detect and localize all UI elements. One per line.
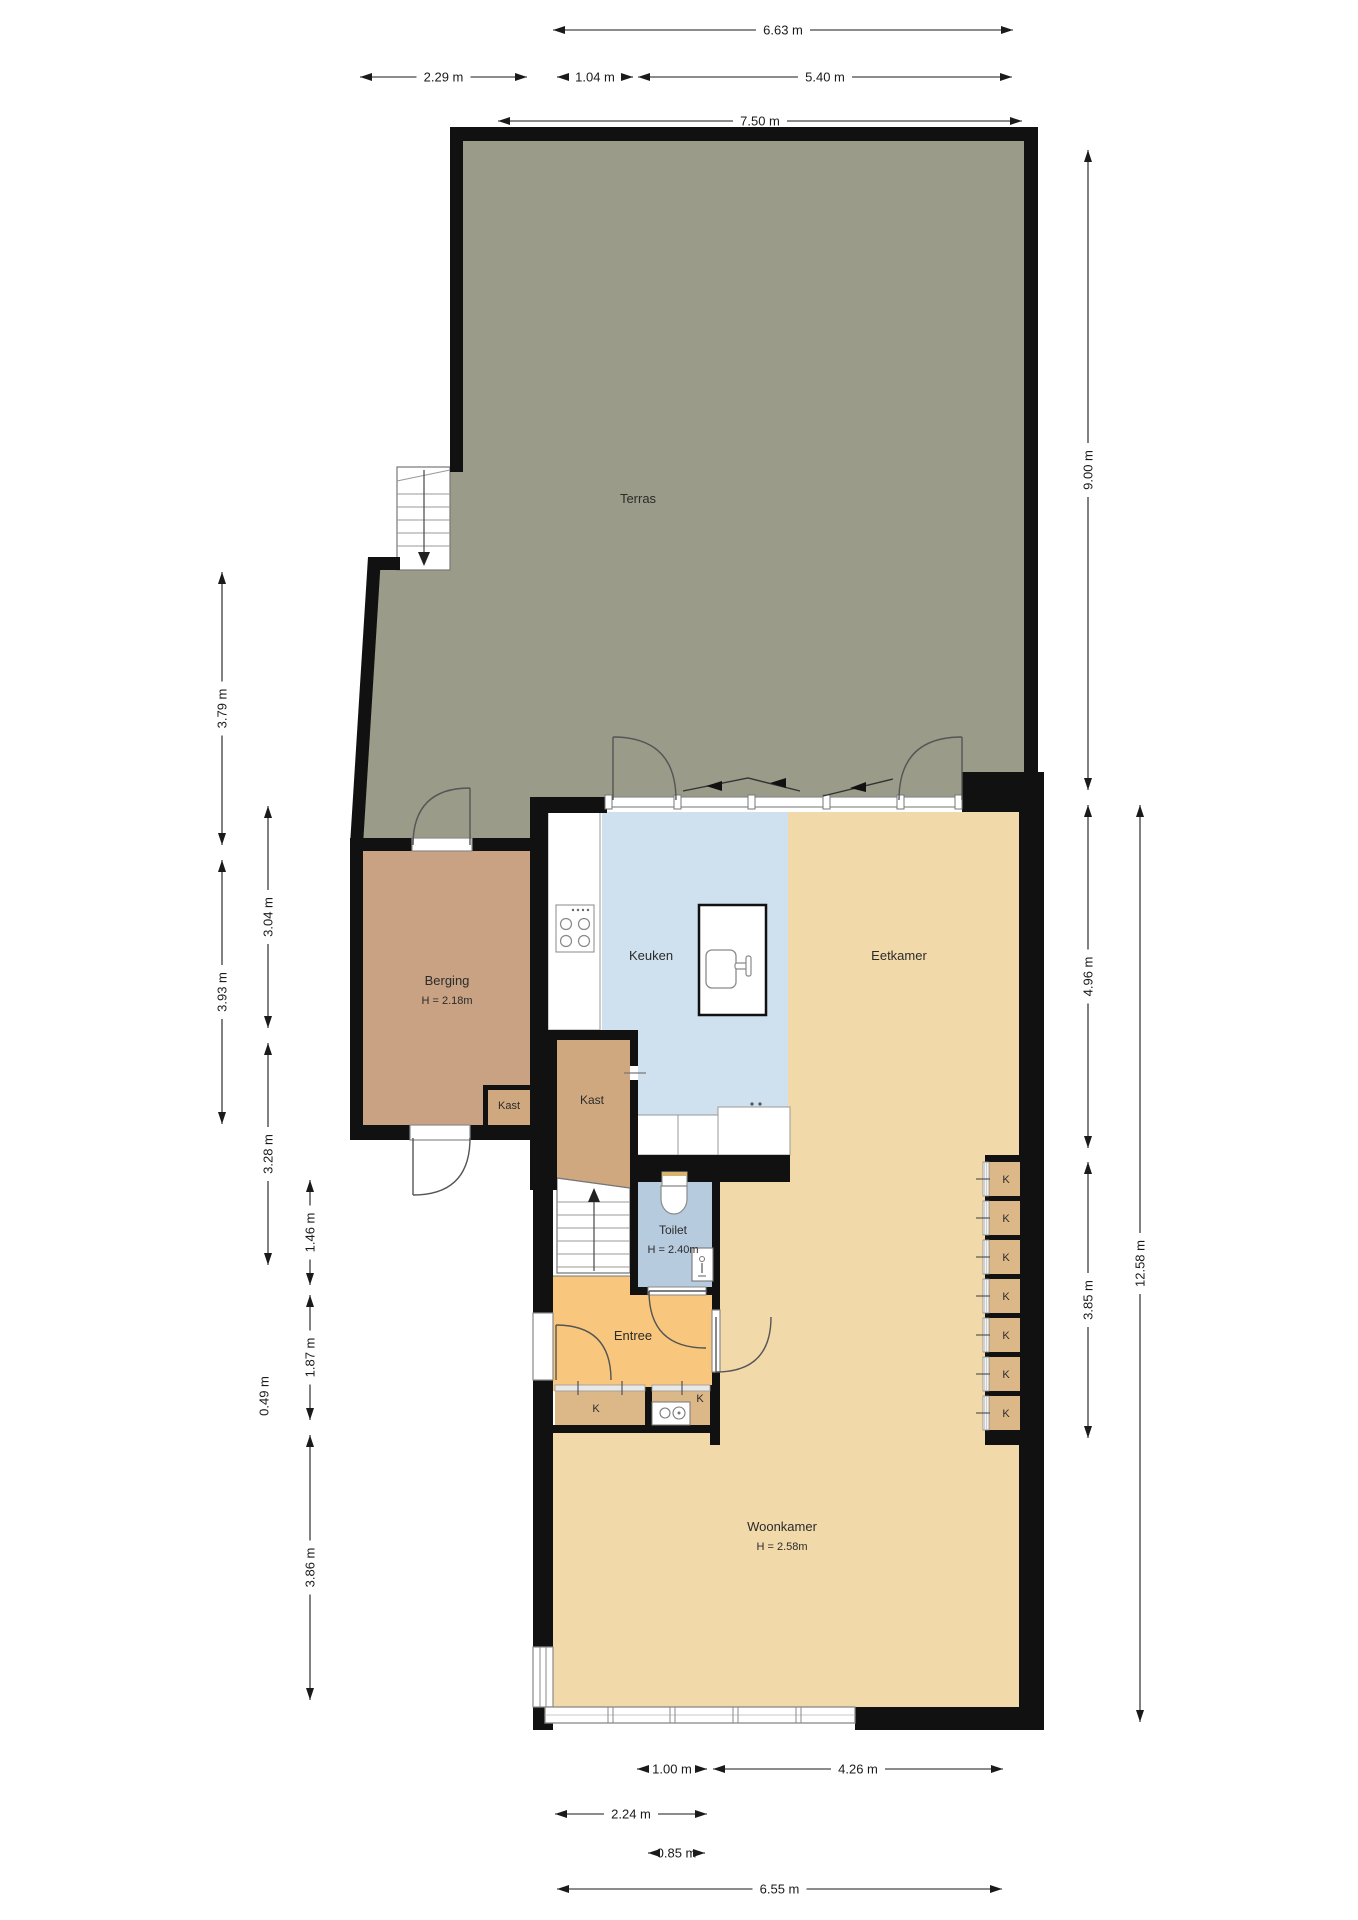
wall-berging-left — [350, 838, 363, 1140]
dimension-label: 1.00 m — [652, 1762, 692, 1777]
wall-kast-small-left — [483, 1085, 488, 1125]
room-sublabel-toilet: H = 2.40m — [647, 1244, 698, 1256]
dimension-arrow — [1084, 1136, 1092, 1148]
berging-top-door-frame — [412, 838, 472, 851]
floor-plan-drawing: KKKKKKK TerrasBergingH = 2.18mKastKastKe… — [0, 0, 1358, 1920]
room-kast-big — [557, 1040, 630, 1188]
room-sublabel-berging: H = 2.18m — [421, 995, 472, 1007]
room-label-kast-small: Kast — [498, 1100, 520, 1112]
dimension-label: 3.93 m — [215, 972, 230, 1012]
k-closet-label: K — [1002, 1213, 1010, 1225]
dimension-arrow — [557, 73, 569, 81]
dimension-arrow — [990, 1885, 1002, 1893]
wall-toilet-bottom-b — [706, 1287, 712, 1295]
room-label-keuken: Keuken — [629, 948, 673, 963]
dimension-arrow — [218, 860, 226, 872]
dimension-arrow — [557, 1885, 569, 1893]
wall-left-lower — [533, 1140, 553, 1730]
room-label-k-entree-left: K — [592, 1403, 600, 1415]
kitchen-island — [699, 905, 766, 1015]
dimension-arrow — [498, 117, 510, 125]
room-berging — [363, 851, 530, 1125]
dimension-arrow — [306, 1273, 314, 1285]
stairs-interior — [557, 1178, 630, 1273]
dimension-label: 3.86 m — [303, 1548, 318, 1588]
wall-top — [450, 127, 1038, 141]
dimension-arrow — [991, 1765, 1003, 1773]
room-label-eetkamer: Eetkamer — [871, 948, 927, 963]
dimension-label: 1.04 m — [575, 70, 615, 85]
dimension-arrow — [264, 1253, 272, 1265]
wall-terras-boundary-right — [962, 772, 1019, 812]
dimension-arrow — [1001, 26, 1013, 34]
floorplan-page: KKKKKKK TerrasBergingH = 2.18mKastKastKe… — [0, 0, 1358, 1920]
dimension-label: 3.28 m — [261, 1134, 276, 1174]
dimension-label: 6.63 m — [763, 23, 803, 38]
dimension-arrow — [1084, 150, 1092, 162]
room-label-kast-big: Kast — [580, 1093, 605, 1107]
dimension-arrow — [1000, 73, 1012, 81]
dimension-label: 0.49 m — [257, 1376, 272, 1416]
k-closet-label: K — [1002, 1408, 1010, 1420]
dimension-label: 9.00 m — [1081, 450, 1096, 490]
dimension-arrow — [306, 1180, 314, 1192]
k-closet-label: K — [1002, 1369, 1010, 1381]
dimension-arrow — [306, 1295, 314, 1307]
dimension-arrow — [264, 1016, 272, 1028]
room-label-entree: Entree — [614, 1328, 652, 1343]
berging-bottom-door-frame — [410, 1125, 470, 1140]
k-closet-label: K — [1002, 1330, 1010, 1342]
wall-terras-right — [1024, 127, 1038, 798]
dimension-arrow — [695, 1765, 707, 1773]
dimension-arrow — [1010, 117, 1022, 125]
dimension-arrow — [264, 806, 272, 818]
k-closet-label: K — [1002, 1174, 1010, 1186]
dimension-arrow — [306, 1435, 314, 1447]
dimension-label: 4.96 m — [1081, 957, 1096, 997]
front-door-frame — [533, 1313, 553, 1380]
dimension-arrow — [218, 833, 226, 845]
toilet-icon — [661, 1172, 687, 1214]
dimension-arrow — [553, 26, 565, 34]
dimension-arrow — [306, 1688, 314, 1700]
wall-under-counter — [630, 1155, 790, 1182]
wall-toilet-left — [630, 1182, 638, 1295]
wall-terras-left — [450, 127, 463, 472]
dimension-arrow — [515, 73, 527, 81]
washer-icon — [652, 1402, 690, 1425]
dimension-label: 3.04 m — [261, 897, 276, 937]
dimension-arrow — [555, 1810, 567, 1818]
k-closet-label: K — [1002, 1252, 1010, 1264]
dimension-arrow — [621, 73, 633, 81]
dimension-arrow — [1084, 1426, 1092, 1438]
room-label-toilet: Toilet — [659, 1223, 688, 1237]
room-label-terras: Terras — [620, 491, 657, 506]
wall-terras-boundary-left — [530, 797, 607, 813]
door-arc-berging-bottom — [413, 1138, 470, 1195]
room-label-berging: Berging — [425, 973, 470, 988]
closet-k-left — [555, 1391, 645, 1425]
dimension-label: 7.50 m — [740, 114, 780, 129]
dimension-arrow — [264, 1043, 272, 1055]
wall-entree-right-lower — [710, 1385, 720, 1445]
dimension-arrow — [1084, 805, 1092, 817]
dimension-label: 0.85 m — [657, 1846, 697, 1861]
wall-mid-vertical — [530, 797, 548, 1040]
dimension-label: 3.85 m — [1081, 1280, 1096, 1320]
dimension-arrow — [713, 1765, 725, 1773]
dimension-arrow — [1084, 778, 1092, 790]
dimension-arrow — [638, 73, 650, 81]
dimension-label: 4.26 m — [838, 1762, 878, 1777]
wall-right — [1019, 772, 1044, 1730]
dimension-label: 1.87 m — [303, 1338, 318, 1378]
dimension-label: 1.46 m — [303, 1213, 318, 1253]
dimension-label: 3.79 m — [215, 689, 230, 729]
dimension-arrow — [218, 572, 226, 584]
wall-toilet-bottom-a — [638, 1287, 648, 1295]
dimension-label: 2.29 m — [424, 70, 464, 85]
dimension-arrow — [1136, 1710, 1144, 1722]
dimension-arrow — [360, 73, 372, 81]
wall-bottom-right — [855, 1707, 1044, 1730]
left-window — [533, 1647, 553, 1707]
wall-kast-left — [530, 1030, 557, 1190]
k-closet-label: K — [1002, 1291, 1010, 1303]
wall-kast-top — [548, 1030, 638, 1040]
dimension-arrow — [306, 1408, 314, 1420]
wall-under-k — [548, 1425, 717, 1433]
wall-kast-small-top — [483, 1085, 530, 1090]
dimension-arrow — [695, 1810, 707, 1818]
terras-glazed-wall — [605, 795, 962, 809]
dimension-label: 12.58 m — [1133, 1240, 1148, 1287]
dimension-label: 5.40 m — [805, 70, 845, 85]
dimension-arrow — [637, 1765, 649, 1773]
dimension-label: 2.24 m — [611, 1807, 651, 1822]
dimension-arrow — [218, 1112, 226, 1124]
dimension-arrow — [1084, 1162, 1092, 1174]
sink-icon — [706, 950, 736, 988]
stove-icon — [556, 905, 594, 952]
dimension-arrow — [1136, 805, 1144, 817]
wall-k-divider — [645, 1387, 652, 1425]
room-sublabel-woonkamer: H = 2.58m — [756, 1541, 807, 1553]
dimension-label: 6.55 m — [760, 1882, 800, 1897]
stairs-terras — [397, 467, 450, 570]
bottom-window — [545, 1707, 855, 1723]
room-label-woonkamer: Woonkamer — [747, 1519, 818, 1534]
room-label-k-entree-right: K — [696, 1393, 704, 1405]
